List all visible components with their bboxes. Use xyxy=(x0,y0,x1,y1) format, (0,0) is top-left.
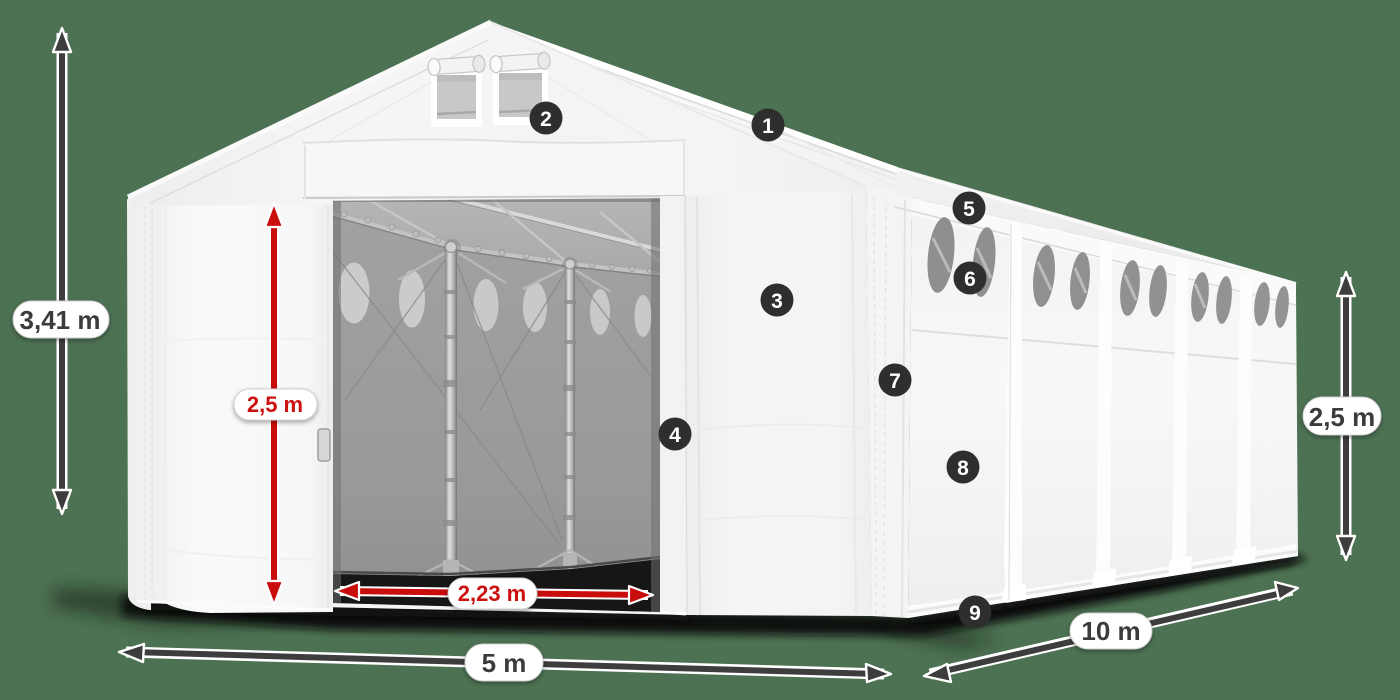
svg-text:2,5 m: 2,5 m xyxy=(1309,402,1376,432)
svg-text:1: 1 xyxy=(762,115,774,138)
svg-text:4: 4 xyxy=(669,424,681,447)
svg-text:3,41 m: 3,41 m xyxy=(20,305,101,335)
svg-text:10 m: 10 m xyxy=(1081,616,1140,646)
svg-text:5: 5 xyxy=(963,198,975,221)
svg-text:7: 7 xyxy=(889,370,901,393)
svg-text:6: 6 xyxy=(964,268,976,291)
svg-text:2: 2 xyxy=(540,108,552,131)
svg-text:5 m: 5 m xyxy=(482,648,527,678)
svg-text:2,5 m: 2,5 m xyxy=(247,392,303,417)
svg-text:2,23 m: 2,23 m xyxy=(458,581,527,606)
svg-text:9: 9 xyxy=(969,602,981,625)
svg-text:3: 3 xyxy=(771,290,783,313)
svg-text:8: 8 xyxy=(957,457,969,480)
